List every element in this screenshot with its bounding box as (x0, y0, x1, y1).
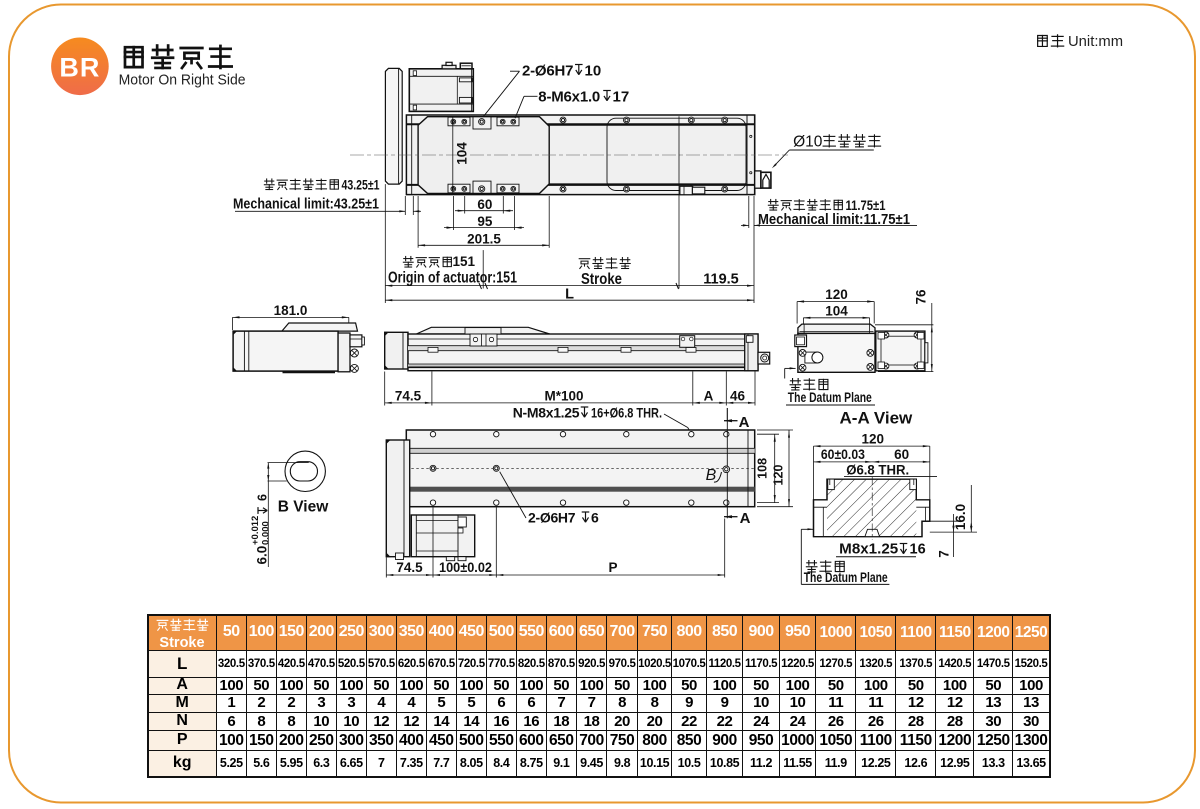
svg-text:The Datum Plane: The Datum Plane (804, 570, 888, 585)
svg-text:B View: B View (278, 499, 329, 516)
svg-text:181.0: 181.0 (274, 303, 308, 318)
svg-text:Ø10: Ø10 (793, 134, 823, 151)
svg-text:46: 46 (730, 389, 746, 404)
svg-text:2-Ø6H7: 2-Ø6H7 (522, 63, 573, 80)
svg-text:8-M6x1.0: 8-M6x1.0 (538, 89, 600, 106)
svg-text:0.000: 0.000 (261, 521, 272, 545)
svg-text:43.25±1: 43.25±1 (342, 178, 380, 193)
svg-text:Stroke: Stroke (159, 635, 204, 650)
svg-text:16.0: 16.0 (953, 504, 968, 530)
svg-text:151: 151 (453, 254, 476, 269)
svg-text:104: 104 (825, 303, 848, 318)
svg-text:+0.012: +0.012 (250, 516, 261, 545)
svg-text:L: L (565, 287, 574, 303)
svg-text:M*100: M*100 (544, 389, 583, 404)
svg-text:16: 16 (910, 542, 926, 558)
svg-text:104: 104 (455, 142, 470, 165)
svg-text:2-Ø6H7: 2-Ø6H7 (528, 510, 576, 526)
svg-text:Motor On Right Side: Motor On Right Side (119, 73, 246, 89)
svg-text:N-M8x1.25: N-M8x1.25 (513, 405, 580, 421)
svg-text:6.0: 6.0 (255, 546, 270, 565)
svg-text:A-A View: A-A View (840, 409, 914, 428)
svg-text:60: 60 (477, 197, 492, 212)
svg-text:119.5: 119.5 (703, 272, 739, 288)
svg-text:74.5: 74.5 (395, 389, 422, 404)
svg-text:Mechanical limit:43.25±1: Mechanical limit:43.25±1 (233, 197, 379, 213)
svg-text:120: 120 (772, 465, 786, 486)
svg-text:120: 120 (862, 432, 885, 447)
svg-text:17: 17 (613, 89, 630, 106)
svg-text:60: 60 (894, 447, 909, 462)
svg-text:Unit:mm: Unit:mm (1068, 34, 1123, 50)
svg-text:M8x1.25: M8x1.25 (839, 542, 898, 558)
svg-text:16+Ø6.8 THR.: 16+Ø6.8 THR. (591, 405, 662, 421)
svg-text:11.75±1: 11.75±1 (846, 198, 886, 213)
svg-text:A: A (739, 414, 750, 431)
svg-text:6: 6 (256, 494, 270, 501)
svg-text:The Datum Plane: The Datum Plane (788, 390, 872, 405)
svg-text:A: A (704, 389, 714, 404)
svg-text:Stroke: Stroke (581, 271, 622, 288)
svg-text:120: 120 (825, 287, 848, 302)
svg-text:100±0.02: 100±0.02 (439, 560, 492, 575)
svg-text:95: 95 (477, 214, 493, 229)
svg-text:Ø6.8 THR.: Ø6.8 THR. (846, 462, 909, 477)
svg-text:60±0.03: 60±0.03 (821, 447, 865, 462)
svg-text:B: B (706, 467, 717, 484)
svg-text:P: P (608, 560, 617, 575)
svg-text:10: 10 (585, 63, 602, 80)
svg-text:Origin of actuator:151: Origin of actuator:151 (388, 270, 517, 287)
svg-text:A: A (740, 510, 751, 527)
svg-text:6: 6 (591, 510, 599, 526)
svg-text:74.5: 74.5 (396, 560, 423, 575)
svg-text:108: 108 (756, 458, 770, 479)
svg-text:7: 7 (937, 550, 952, 558)
svg-text:76: 76 (914, 289, 929, 305)
svg-text:BR: BR (59, 53, 100, 83)
svg-text:201.5: 201.5 (467, 231, 501, 246)
